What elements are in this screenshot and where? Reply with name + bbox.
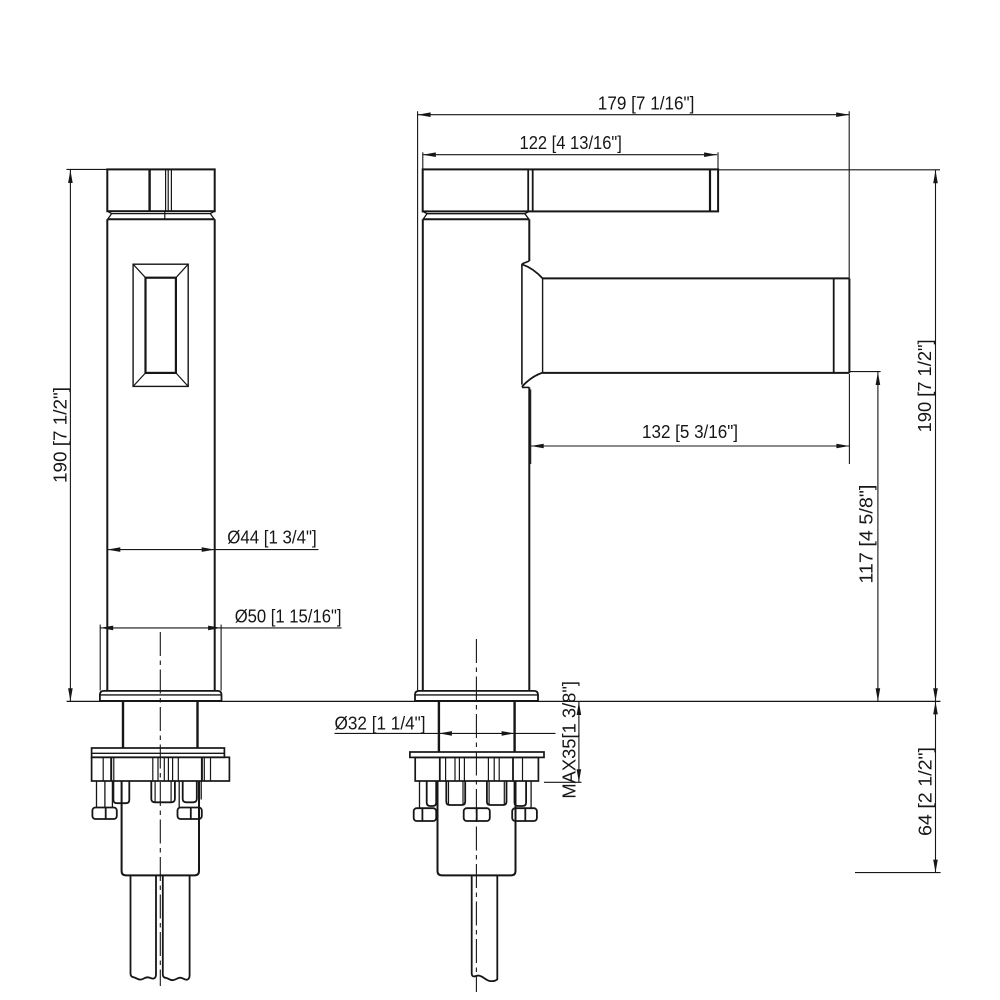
svg-text:Ø32 [1 1/4"]: Ø32 [1 1/4"]: [335, 712, 426, 733]
svg-text:122 [4 13/16"]: 122 [4 13/16"]: [520, 132, 622, 153]
svg-text:Ø44 [1 3/4"]: Ø44 [1 3/4"]: [227, 526, 317, 547]
svg-text:179 [7 1/16"]: 179 [7 1/16"]: [598, 93, 695, 114]
svg-text:117 [4 5/8"]: 117 [4 5/8"]: [855, 485, 876, 584]
svg-text:64 [2 1/2"]: 64 [2 1/2"]: [914, 747, 935, 836]
svg-text:190 [7 1/2"]: 190 [7 1/2"]: [49, 387, 70, 483]
svg-text:132 [5 3/16"]: 132 [5 3/16"]: [642, 421, 738, 442]
svg-text:MAX35[1 3/8"]: MAX35[1 3/8"]: [559, 681, 580, 799]
svg-text:Ø50 [1 15/16"]: Ø50 [1 15/16"]: [235, 606, 342, 627]
svg-text:190 [7 1/2"]: 190 [7 1/2"]: [914, 339, 935, 432]
